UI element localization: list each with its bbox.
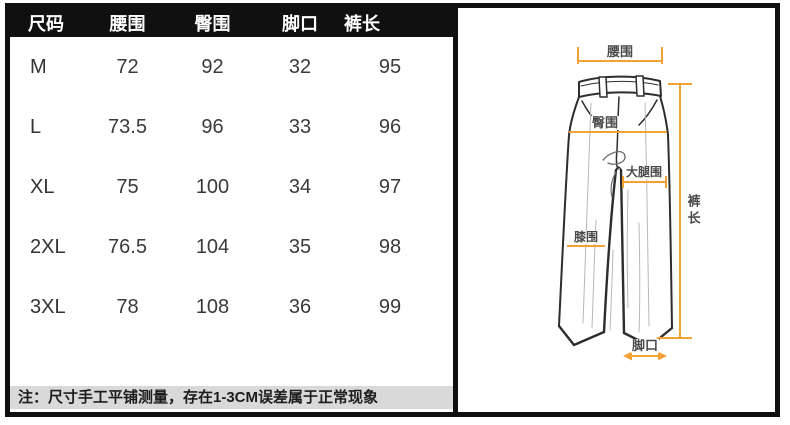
knee-measure-label: 膝围: [573, 231, 599, 244]
table-row: 2XL 76.5 104 35 98: [10, 217, 453, 277]
size-label: L: [10, 116, 80, 139]
hip-value: 104: [175, 236, 250, 259]
table-row: XL 75 100 34 97: [10, 157, 453, 217]
waist-value: 76.5: [80, 236, 175, 259]
pants-drawing: [458, 8, 775, 412]
hip-measure-label: 臀围: [591, 116, 619, 130]
leg-opening-value: 35: [250, 236, 350, 259]
size-label: 2XL: [10, 236, 80, 259]
table-row: 3XL 78 108 36 99: [10, 277, 453, 337]
measurement-note: 注：尺寸手工平铺测量，存在1-3CM误差属于正常现象: [10, 386, 453, 409]
leg-opening-value: 34: [250, 176, 350, 199]
waist-value: 75: [80, 176, 175, 199]
size-chart-panel: 尺码 腰围 臀围 脚口 裤长 M 72 92 32 95 L 73.5 96 3…: [5, 3, 780, 417]
hip-value: 92: [175, 56, 250, 79]
table-row: M 72 92 32 95: [10, 37, 453, 97]
header-hip: 臀围: [175, 10, 250, 36]
waist-value: 73.5: [80, 116, 175, 139]
thigh-measure-label: 大腿围: [625, 166, 663, 179]
hip-value: 100: [175, 176, 250, 199]
length-value: 98: [350, 236, 430, 259]
leg-opening-value: 33: [250, 116, 350, 139]
pants-measure-diagram: 腰围 臀围 大腿围 膝围 裤长 脚口: [458, 8, 775, 412]
table-row: L 73.5 96 33 96: [10, 97, 453, 157]
leg-opening-measure-label: 脚口: [631, 339, 659, 353]
header-size: 尺码: [10, 10, 80, 36]
hip-value: 108: [175, 296, 250, 319]
size-label: M: [10, 56, 80, 79]
length-value: 97: [350, 176, 430, 199]
leg-opening-value: 36: [250, 296, 350, 319]
length-measure-label: 裤长: [685, 194, 701, 228]
waist-value: 78: [80, 296, 175, 319]
length-value: 96: [350, 116, 430, 139]
waist-measure-label: 腰围: [606, 45, 634, 59]
size-table: 尺码 腰围 臀围 脚口 裤长 M 72 92 32 95 L 73.5 96 3…: [10, 8, 458, 412]
size-label: 3XL: [10, 296, 80, 319]
waist-value: 72: [80, 56, 175, 79]
hip-value: 96: [175, 116, 250, 139]
leg-opening-value: 32: [250, 56, 350, 79]
table-header-row: 尺码 腰围 臀围 脚口 裤长: [10, 8, 453, 37]
header-length: 裤长: [322, 10, 402, 36]
header-waist: 腰围: [80, 10, 175, 36]
length-value: 99: [350, 296, 430, 319]
size-label: XL: [10, 176, 80, 199]
length-value: 95: [350, 56, 430, 79]
